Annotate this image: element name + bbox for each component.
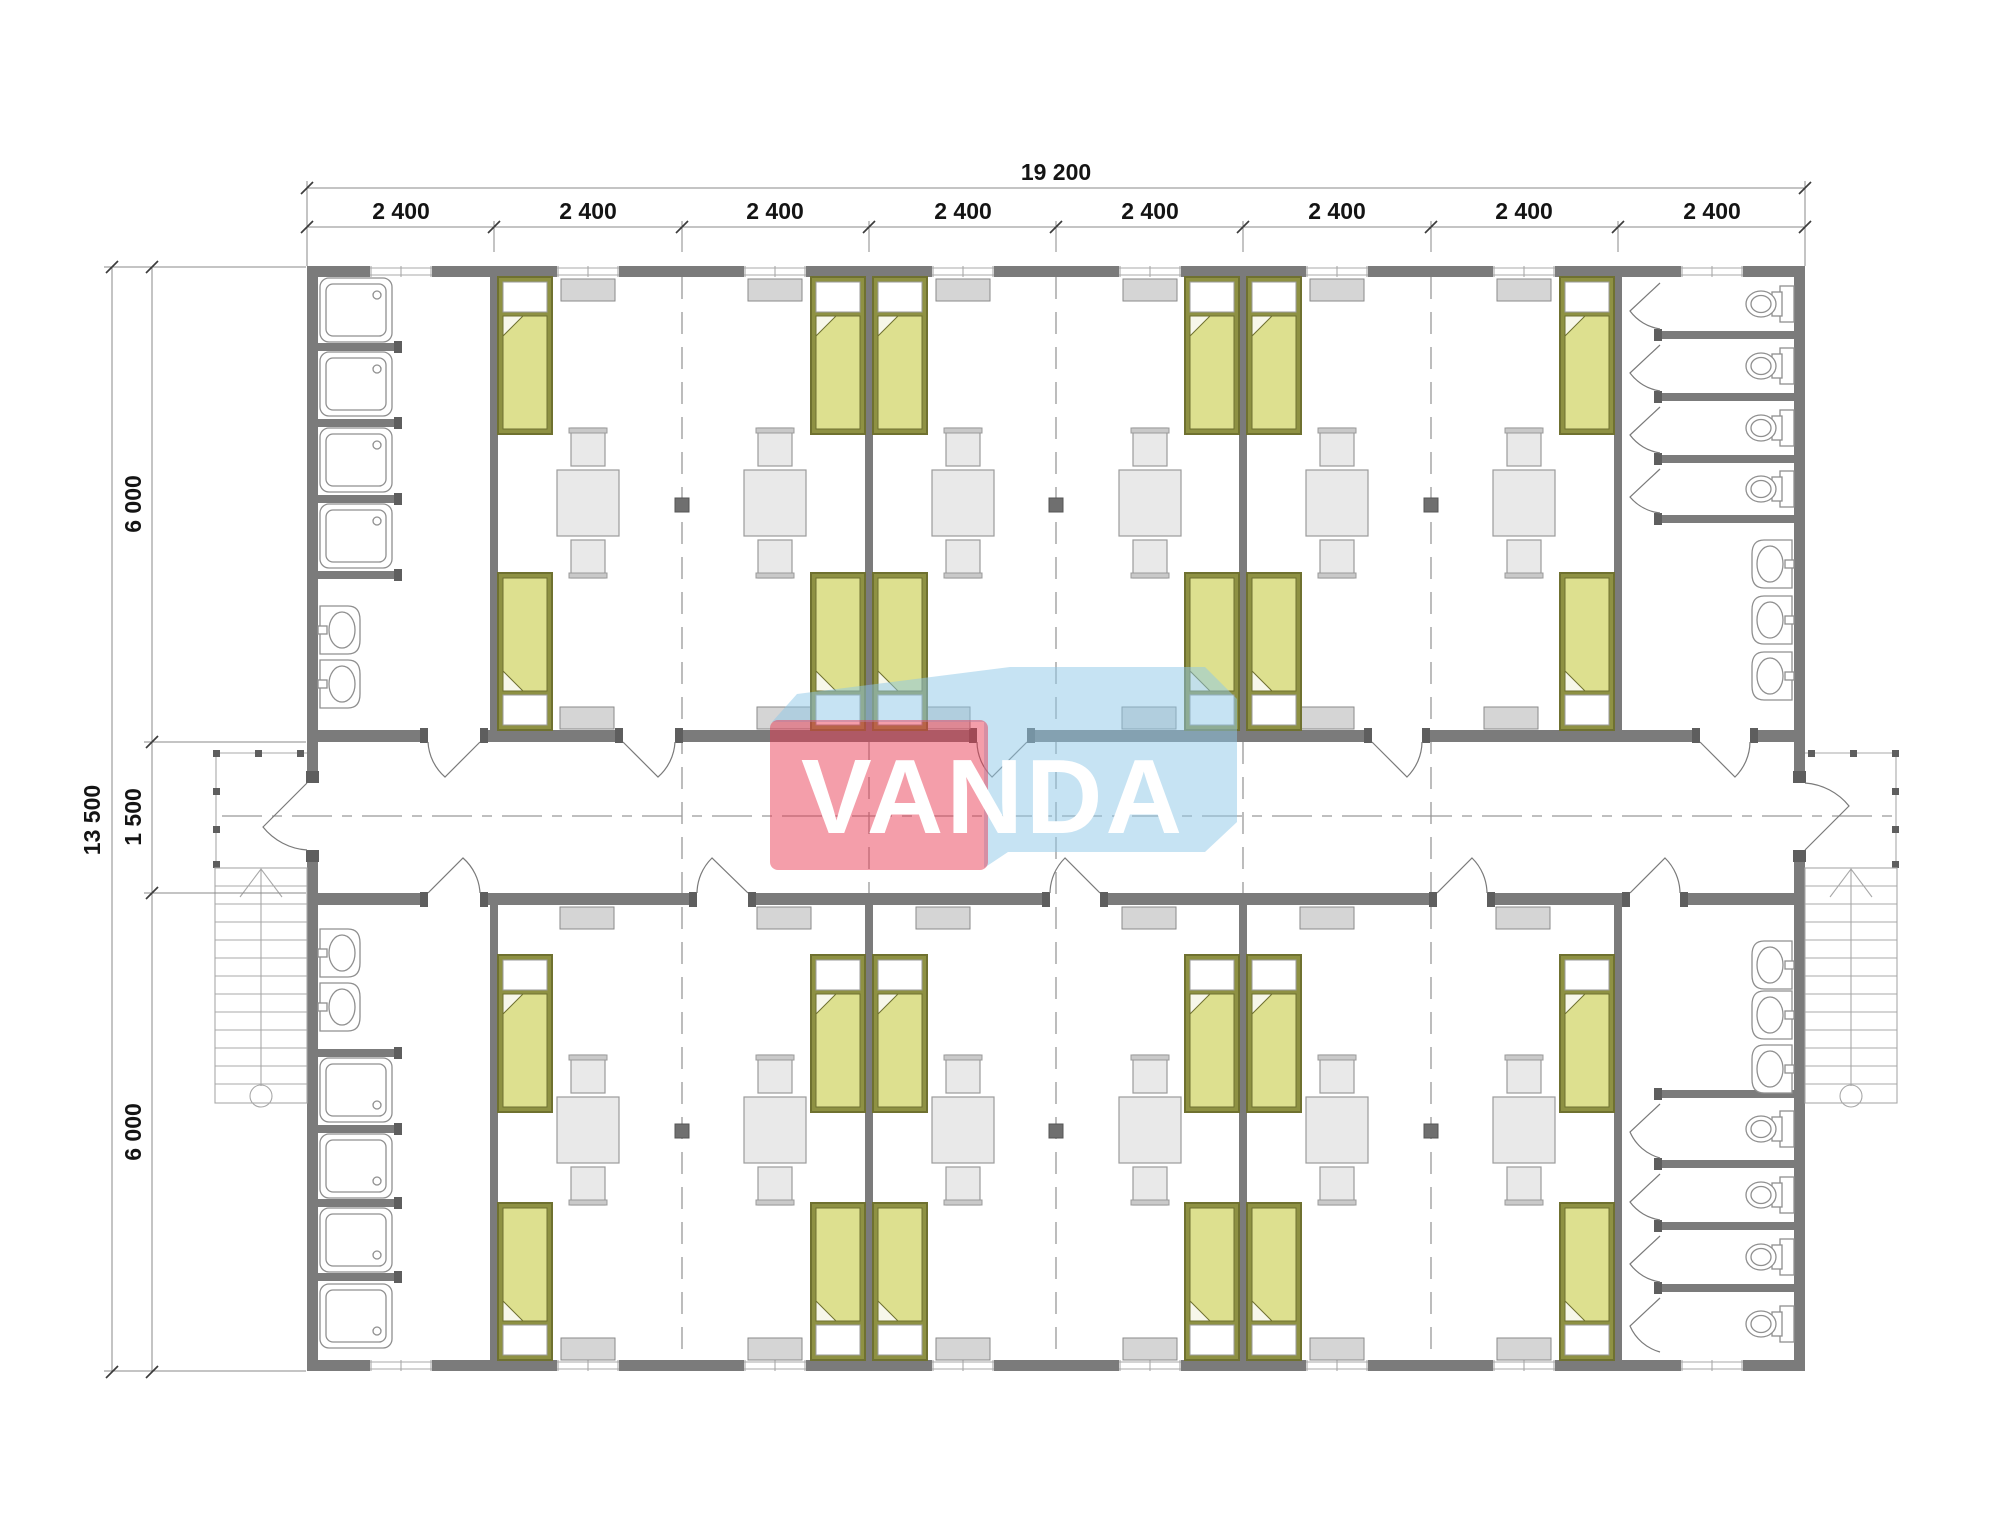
shower-partition <box>318 571 402 579</box>
heater <box>1496 907 1550 929</box>
corridor-wall-segment <box>1680 893 1794 905</box>
wall-segment <box>865 905 873 1360</box>
corridor-wall-segment <box>1487 893 1630 905</box>
heater <box>1310 1338 1364 1360</box>
dimension-label-module: 2 400 <box>1121 198 1179 224</box>
room-door-swing <box>1437 858 1487 893</box>
bed <box>873 1203 927 1360</box>
wash-basin <box>318 606 360 654</box>
wash-basin <box>318 660 360 708</box>
wash-basin <box>1752 596 1794 644</box>
bed <box>1185 277 1239 434</box>
heater <box>560 707 614 729</box>
bed <box>498 1203 552 1360</box>
bed <box>1560 277 1614 434</box>
table-with-chairs <box>1306 1055 1368 1205</box>
stall-door-swing <box>1630 1298 1660 1352</box>
watermark-text: VANDA <box>801 738 1185 856</box>
wall-segment <box>865 277 873 730</box>
corridor-wall-segment <box>748 893 1050 905</box>
room-door-swing <box>1372 742 1422 777</box>
table-with-chairs <box>1493 428 1555 578</box>
exterior-wall-bottom <box>307 1360 1805 1371</box>
wall-segment <box>1614 905 1622 1360</box>
window <box>1681 1360 1743 1371</box>
bed <box>873 955 927 1112</box>
corridor-wall-segment <box>318 730 428 742</box>
window <box>557 1360 619 1371</box>
stairs-start-marker <box>1840 1085 1862 1107</box>
column-marker <box>675 1124 689 1138</box>
wall-segment <box>1614 277 1622 730</box>
window <box>370 1360 432 1371</box>
room-door-swing <box>1700 742 1750 777</box>
heater <box>1122 907 1176 929</box>
shower-stall <box>320 1208 392 1272</box>
window <box>557 266 619 277</box>
table-with-chairs <box>932 428 994 578</box>
bed <box>1247 955 1301 1112</box>
heater <box>1497 1338 1551 1360</box>
corridor-wall-segment <box>318 893 428 905</box>
shower-stall <box>320 278 392 342</box>
corridor-wall-segment <box>480 730 623 742</box>
room-door-swing <box>623 742 675 777</box>
shower-partition <box>318 495 402 503</box>
column-marker <box>1424 1124 1438 1138</box>
wash-basin <box>318 929 360 977</box>
bed <box>1560 573 1614 730</box>
heater <box>748 1338 802 1360</box>
bed <box>1560 955 1614 1112</box>
table-with-chairs <box>744 428 806 578</box>
wash-basin <box>1752 540 1794 588</box>
toilet <box>1746 286 1794 322</box>
shower-stall <box>320 1058 392 1122</box>
stairs-west <box>213 750 307 1107</box>
landing-railing <box>216 753 307 868</box>
table-with-chairs <box>1493 1055 1555 1205</box>
heater <box>1484 707 1538 729</box>
wash-basin <box>318 983 360 1031</box>
heater <box>1310 279 1364 301</box>
bed <box>811 1203 865 1360</box>
bed <box>1247 1203 1301 1360</box>
window <box>1493 266 1555 277</box>
exterior-wall-west <box>307 266 318 783</box>
stall-door-swing <box>1630 283 1660 329</box>
shower-stall <box>320 352 392 416</box>
washroom-east <box>1630 283 1794 1352</box>
wall-segment <box>490 277 498 730</box>
bed <box>1185 955 1239 1112</box>
shower-partition <box>318 343 402 351</box>
shower-partition <box>318 1049 402 1057</box>
heater <box>757 907 811 929</box>
heater <box>561 279 615 301</box>
toilet <box>1746 1177 1794 1213</box>
toilet <box>1746 1306 1794 1342</box>
room-door-swing <box>428 858 480 893</box>
wash-basin <box>1752 941 1794 989</box>
room-door-swing <box>1630 858 1680 893</box>
bed <box>498 277 552 434</box>
dimension-label-height-segment: 1 500 <box>120 788 146 846</box>
window <box>932 1360 994 1371</box>
dimension-label-module: 2 400 <box>1683 198 1741 224</box>
table-with-chairs <box>1119 428 1181 578</box>
window <box>1493 1360 1555 1371</box>
room-door-swing <box>1050 858 1100 893</box>
column-marker <box>675 498 689 512</box>
bed <box>1185 1203 1239 1360</box>
wc-partition <box>1660 515 1794 523</box>
heater <box>1300 707 1354 729</box>
heater <box>936 1338 990 1360</box>
bed <box>1247 573 1301 730</box>
dimension-label-module: 2 400 <box>1308 198 1366 224</box>
stairs-east <box>1805 750 1899 1107</box>
dimension-label-total-height: 13 500 <box>79 785 105 855</box>
exterior-wall-west <box>307 850 318 1371</box>
washroom-west <box>318 278 402 1348</box>
exterior-wall-east <box>1794 850 1805 1371</box>
dimension-label-height-segment: 6 000 <box>120 1103 146 1161</box>
bed <box>811 955 865 1112</box>
wc-partition <box>1660 455 1794 463</box>
heater <box>916 907 970 929</box>
table-with-chairs <box>744 1055 806 1205</box>
dimension-label-module: 2 400 <box>372 198 430 224</box>
shower-stall <box>320 1134 392 1198</box>
shower-stall <box>320 428 392 492</box>
shower-partition <box>318 1125 402 1133</box>
heater <box>1123 1338 1177 1360</box>
toilet <box>1746 471 1794 507</box>
wc-partition <box>1660 1284 1794 1292</box>
column-marker <box>1424 498 1438 512</box>
stall-door-swing <box>1630 469 1660 513</box>
corridor-wall-segment <box>1422 730 1700 742</box>
wash-basin <box>1752 1045 1794 1093</box>
stall-door-swing <box>1630 1104 1660 1158</box>
window <box>1306 266 1368 277</box>
wc-partition <box>1660 393 1794 401</box>
stall-door-swing <box>1630 1174 1660 1220</box>
stall-door-swing <box>1630 1236 1660 1282</box>
floor-plan-drawing: VANDA 19 200 2 400 2 400 2 400 2 400 2 4… <box>0 0 2000 1539</box>
wc-partition <box>1660 1222 1794 1230</box>
dimension-label-module: 2 400 <box>1495 198 1553 224</box>
wall-segment <box>1239 277 1247 730</box>
bed <box>498 573 552 730</box>
column-marker <box>1049 1124 1063 1138</box>
bed <box>1560 1203 1614 1360</box>
table-with-chairs <box>557 1055 619 1205</box>
corridor-wall-segment <box>480 893 697 905</box>
wash-basin <box>1752 652 1794 700</box>
dimension-label-module: 2 400 <box>934 198 992 224</box>
landing-railing <box>1805 753 1896 868</box>
bed <box>498 955 552 1112</box>
window <box>744 266 806 277</box>
heater <box>561 1338 615 1360</box>
window <box>370 266 432 277</box>
bed <box>811 277 865 434</box>
heater <box>936 279 990 301</box>
dimension-label-total-width: 19 200 <box>1021 159 1091 185</box>
window <box>1681 266 1743 277</box>
heater <box>1497 279 1551 301</box>
shower-stall <box>320 1284 392 1348</box>
wall-segment <box>490 905 498 1360</box>
heater <box>560 907 614 929</box>
wash-basin <box>1752 991 1794 1039</box>
dimension-label-height-segment: 6 000 <box>120 475 146 533</box>
corridor-wall-segment <box>1100 893 1437 905</box>
table-with-chairs <box>557 428 619 578</box>
shower-partition <box>318 1199 402 1207</box>
window <box>744 1360 806 1371</box>
heater <box>1300 907 1354 929</box>
column-marker <box>1049 498 1063 512</box>
shower-partition <box>318 1273 402 1281</box>
shower-partition <box>318 419 402 427</box>
shower-stall <box>320 504 392 568</box>
watermark: VANDA <box>770 667 1237 870</box>
heater <box>748 279 802 301</box>
dimension-label-module: 2 400 <box>559 198 617 224</box>
wall-segment <box>1239 905 1247 1360</box>
window <box>1306 1360 1368 1371</box>
window <box>1119 1360 1181 1371</box>
wc-partition <box>1660 1160 1794 1168</box>
wc-partition <box>1660 331 1794 339</box>
exterior-wall-top <box>307 266 1805 277</box>
stall-door-swing <box>1630 407 1660 453</box>
room-door-swing <box>428 742 480 777</box>
dimension-label-module: 2 400 <box>746 198 804 224</box>
toilet <box>1746 410 1794 446</box>
toilet <box>1746 1239 1794 1275</box>
table-with-chairs <box>1306 428 1368 578</box>
room-door-swing <box>697 858 748 893</box>
window <box>932 266 994 277</box>
bed <box>1247 277 1301 434</box>
bed <box>873 277 927 434</box>
toilet <box>1746 1111 1794 1147</box>
table-with-chairs <box>1119 1055 1181 1205</box>
window <box>1119 266 1181 277</box>
exterior-wall-east <box>1794 266 1805 783</box>
stairs-start-marker <box>250 1085 272 1107</box>
toilet <box>1746 348 1794 384</box>
heater <box>1123 279 1177 301</box>
stall-door-swing <box>1630 345 1660 391</box>
table-with-chairs <box>932 1055 994 1205</box>
